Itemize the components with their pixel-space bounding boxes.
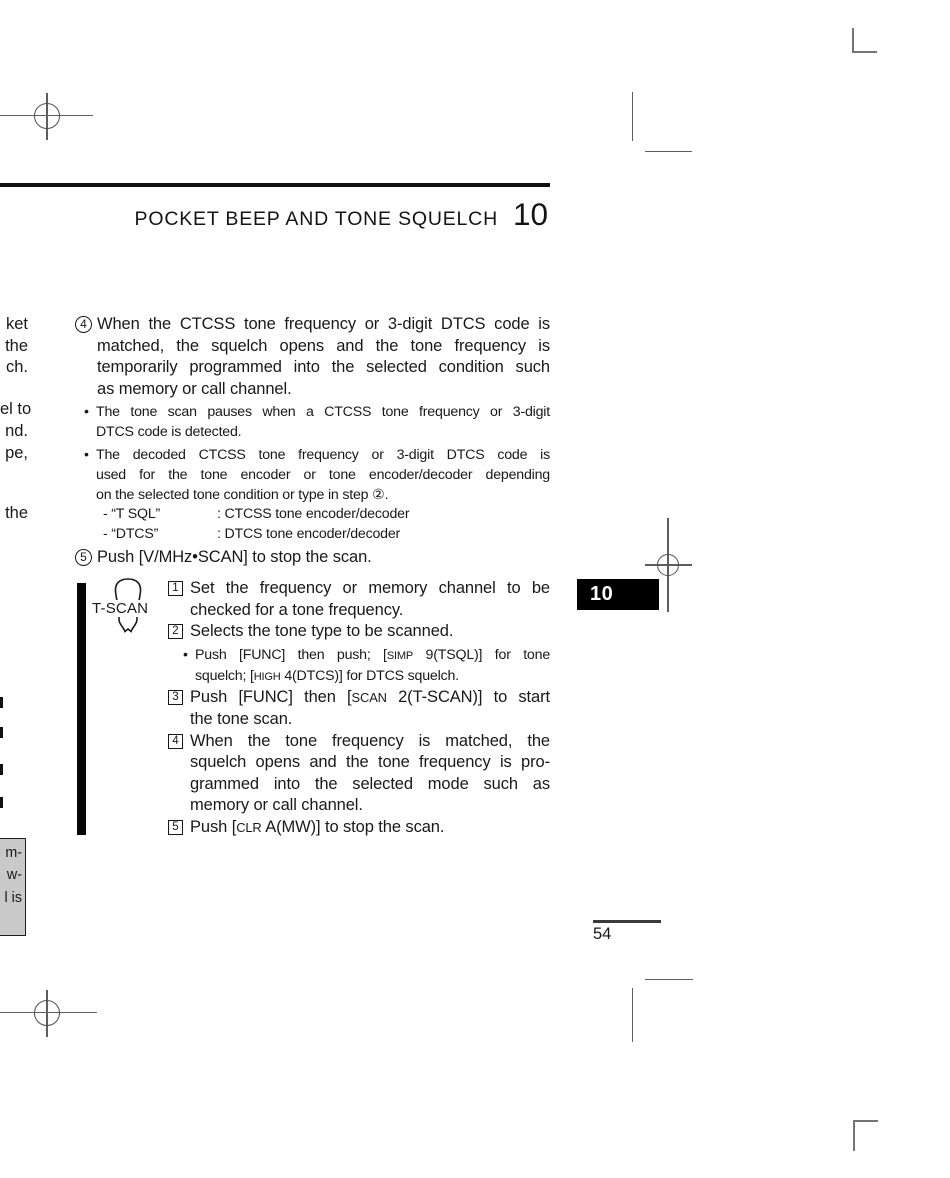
text-line: Push [V/MHz•SCAN] to stop the scan.: [97, 547, 550, 569]
clipped-text-fragment: w-: [0, 864, 22, 886]
text-line: squelch opens and the tone frequency is …: [190, 752, 550, 774]
text-line: Set the frequency or memory channel to b…: [190, 578, 550, 600]
registration-circle-icon: [657, 554, 679, 576]
section-side-bar: [77, 583, 86, 835]
text-segment: Push [: [190, 818, 236, 836]
text-line: Selects the tone type to be scanned.: [190, 621, 550, 643]
definition-term: - “DTCS”: [103, 525, 217, 545]
step-4: 4 When the CTCSS tone frequency or 3-dig…: [75, 314, 550, 400]
clipped-text-fragment: the: [0, 503, 28, 525]
text-line: The decoded CTCSS tone frequency or 3-di…: [96, 446, 550, 466]
corner-crop-mark: [853, 1120, 878, 1122]
clipped-text-fragment: ket: [0, 314, 28, 336]
definition-term: - “T SQL”: [103, 505, 217, 525]
page-title: POCKET BEEP AND TONE SQUELCH: [135, 208, 498, 231]
text-line: on the selected tone condition or type i…: [96, 486, 550, 506]
reg-mark-line: [632, 92, 633, 141]
step-4-marker: 4: [75, 316, 92, 333]
bullet-icon: •: [183, 646, 188, 666]
reg-mark-line: [632, 988, 633, 1042]
note-bullet-1: • The tone scan pauses when a CTCSS tone…: [84, 403, 550, 443]
text-segment: squelch; [: [195, 668, 254, 684]
instruction-2-note: • Push [FUNC] then push; [SIMP 9(TSQL)] …: [183, 646, 550, 688]
note-bullet-2: • The decoded CTCSS tone frequency or 3-…: [84, 446, 550, 505]
boxed-number: 3: [168, 690, 183, 705]
text-line: Push [FUNC] then push; [SIMP 9(TSQL)] fo…: [195, 646, 550, 667]
text-line: temporarily programmed into the selected…: [97, 357, 550, 379]
page-header: POCKET BEEP AND TONE SQUELCH 10: [0, 196, 548, 233]
text-line: used for the tone encoder or tone encode…: [96, 466, 550, 486]
clipped-text-fragment: ch.: [0, 357, 28, 379]
chapter-number: 10: [513, 196, 548, 233]
small-caps-key: SCAN: [352, 690, 387, 705]
text-line: checked for a tone frequency.: [190, 600, 550, 622]
footer-rule: [593, 920, 661, 923]
boxed-number: 5: [168, 820, 183, 835]
small-caps-key: CLR: [236, 820, 261, 835]
dtcs-definition: - “DTCS”: DTCS tone encoder/decoder: [75, 525, 550, 545]
instruction-3: 3 Push [FUNC] then [SCAN 2(T-SCAN)] to s…: [168, 687, 550, 730]
text-segment: 4(DTCS)] for DTCS squelch.: [281, 668, 459, 684]
text-line: grammed into the selected mode such as: [190, 774, 550, 796]
text-line: matched, the squelch opens and the tone …: [97, 336, 550, 358]
step-5-marker: 5: [75, 549, 92, 566]
small-caps-key: HIGH: [254, 671, 281, 683]
clipped-text-fragment: l is: [0, 887, 22, 909]
manual-page: POCKET BEEP AND TONE SQUELCH 10 ket the …: [0, 0, 950, 1178]
boxed-number: 1: [168, 581, 183, 596]
tsql-definition: - “T SQL”: CTCSS tone encoder/decoder: [75, 505, 550, 525]
clipped-text-fragment: pe,: [0, 443, 28, 465]
text-segment: 2(T-SCAN)] to start: [387, 688, 550, 706]
text-segment: Push [FUNC] then push; [: [195, 647, 387, 663]
text-line: When the tone frequency is matched, the: [190, 731, 550, 753]
clipped-note-box: m- w- l is: [0, 838, 26, 936]
page-number: 54: [593, 925, 611, 944]
registration-circle-icon: [34, 103, 60, 129]
instruction-5: 5 Push [CLR A(MW)] to stop the scan.: [168, 817, 550, 839]
small-caps-key: SIMP: [387, 650, 413, 662]
t-scan-key-label: T-SCAN: [91, 600, 149, 617]
clipped-text-fragment: m-: [0, 842, 22, 864]
header-rule: [0, 183, 550, 187]
text-segment: Push [FUNC] then [: [190, 688, 352, 706]
bullet-icon: •: [84, 403, 89, 423]
corner-crop-mark: [853, 1120, 855, 1151]
corner-crop-mark: [852, 51, 877, 53]
clipped-glyph-fragment: [0, 764, 3, 775]
text-line: The tone scan pauses when a CTCSS tone f…: [96, 403, 550, 423]
t-scan-instructions: 1 Set the frequency or memory channel to…: [168, 578, 550, 839]
chapter-tab-number: 10: [590, 583, 613, 605]
text-line: DTCS code is detected.: [96, 423, 550, 443]
boxed-number: 2: [168, 624, 183, 639]
clipped-glyph-fragment: [0, 797, 3, 808]
registration-circle-icon: [34, 1000, 60, 1026]
corner-crop-mark: [852, 28, 854, 53]
clipped-text-fragment: el to: [0, 399, 28, 421]
clipped-text-fragment: nd.: [0, 421, 28, 443]
instruction-2: 2 Selects the tone type to be scanned.: [168, 621, 550, 643]
text-segment: 9(TSQL)] for tone: [413, 647, 550, 663]
chapter-tab: 10: [577, 579, 659, 610]
bullet-icon: •: [84, 446, 89, 466]
instruction-4: 4 When the tone frequency is matched, th…: [168, 731, 550, 817]
main-column: 4 When the CTCSS tone frequency or 3-dig…: [75, 314, 550, 569]
boxed-number: 4: [168, 734, 183, 749]
clipped-glyph-fragment: [0, 697, 3, 708]
instruction-1: 1 Set the frequency or memory channel to…: [168, 578, 550, 621]
text-line: Push [FUNC] then [SCAN 2(T-SCAN)] to sta…: [190, 687, 550, 709]
reg-mark-line: [645, 151, 692, 152]
text-segment: A(MW)] to stop the scan.: [262, 818, 445, 836]
text-line: Push [CLR A(MW)] to stop the scan.: [190, 817, 550, 839]
definition-desc: : DTCS tone encoder/decoder: [217, 526, 400, 542]
step-5: 5 Push [V/MHz•SCAN] to stop the scan.: [75, 547, 550, 569]
text-line: When the CTCSS tone frequency or 3-digit…: [97, 314, 550, 336]
clipped-text-fragment: the: [0, 336, 28, 358]
text-line: squelch; [HIGH 4(DTCS)] for DTCS squelch…: [195, 667, 550, 688]
text-line: the tone scan.: [190, 709, 550, 731]
definition-desc: : CTCSS tone encoder/decoder: [217, 506, 409, 522]
clipped-glyph-fragment: [0, 727, 3, 738]
reg-mark-line: [645, 979, 693, 980]
text-line: as memory or call channel.: [97, 379, 550, 401]
text-line: memory or call channel.: [190, 795, 550, 817]
